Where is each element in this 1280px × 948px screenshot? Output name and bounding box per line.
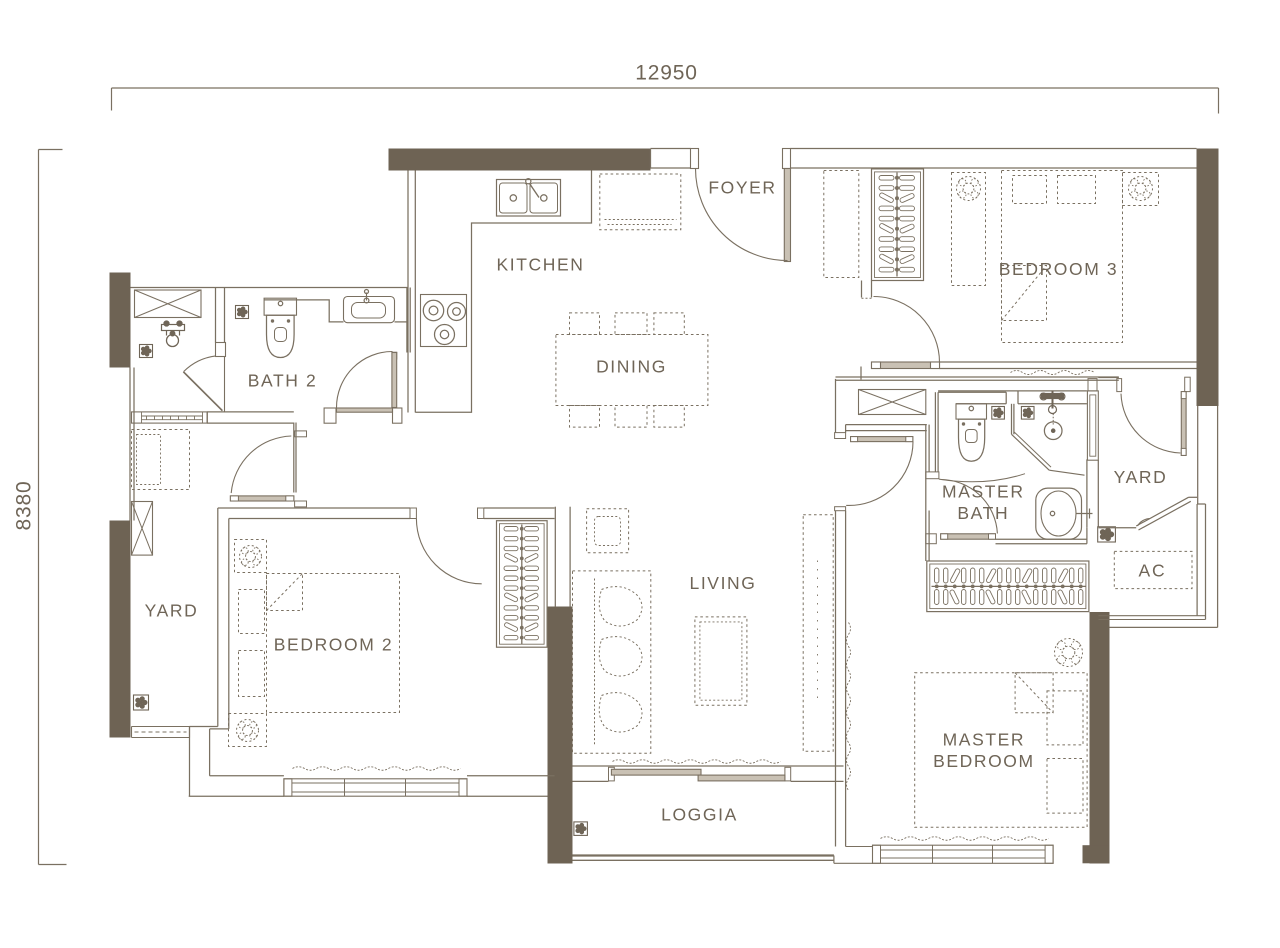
svg-text:MASTER: MASTER	[942, 482, 1025, 502]
svg-text:MASTER: MASTER	[943, 730, 1026, 750]
svg-text:AC: AC	[1139, 561, 1167, 581]
svg-text:8380: 8380	[13, 481, 36, 531]
svg-text:BATH 2: BATH 2	[248, 371, 318, 391]
svg-text:LOGGIA: LOGGIA	[661, 805, 738, 825]
svg-text:12950: 12950	[635, 62, 697, 85]
svg-text:DINING: DINING	[596, 357, 667, 377]
svg-text:BEDROOM: BEDROOM	[933, 751, 1035, 771]
svg-text:LIVING: LIVING	[690, 573, 757, 593]
svg-text:KITCHEN: KITCHEN	[496, 255, 584, 275]
svg-text:YARD: YARD	[145, 601, 199, 621]
svg-text:FOYER: FOYER	[708, 178, 776, 198]
svg-text:BEDROOM 2: BEDROOM 2	[274, 635, 393, 655]
svg-text:YARD: YARD	[1114, 467, 1168, 487]
svg-text:BEDROOM 3: BEDROOM 3	[999, 259, 1118, 279]
svg-text:BATH: BATH	[957, 503, 1009, 523]
